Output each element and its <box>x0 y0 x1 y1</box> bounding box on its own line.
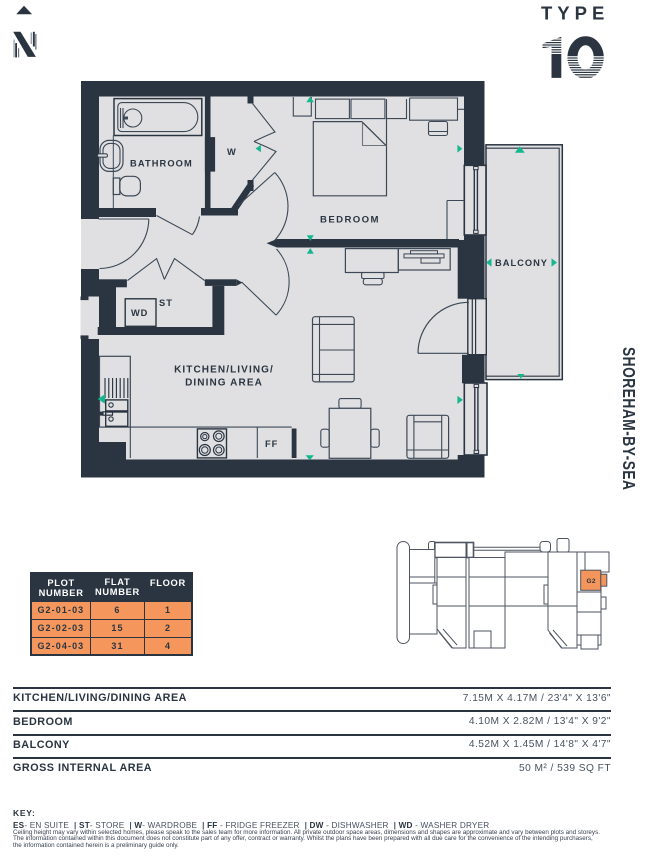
svg-text:BATHROOM: BATHROOM <box>130 159 193 169</box>
svg-text:WD: WD <box>131 308 148 318</box>
svg-text:BEDROOM: BEDROOM <box>320 215 380 226</box>
svg-text:FF: FF <box>265 439 278 449</box>
svg-text:G2: G2 <box>587 578 596 585</box>
svg-text:ST: ST <box>159 298 173 308</box>
svg-text:DINING AREA: DINING AREA <box>185 378 263 389</box>
svg-text:KITCHEN/LIVING/: KITCHEN/LIVING/ <box>174 365 274 376</box>
svg-text:BALCONY: BALCONY <box>495 258 548 268</box>
svg-text:W: W <box>227 147 237 157</box>
svg-text:TYPE: TYPE <box>541 3 609 24</box>
